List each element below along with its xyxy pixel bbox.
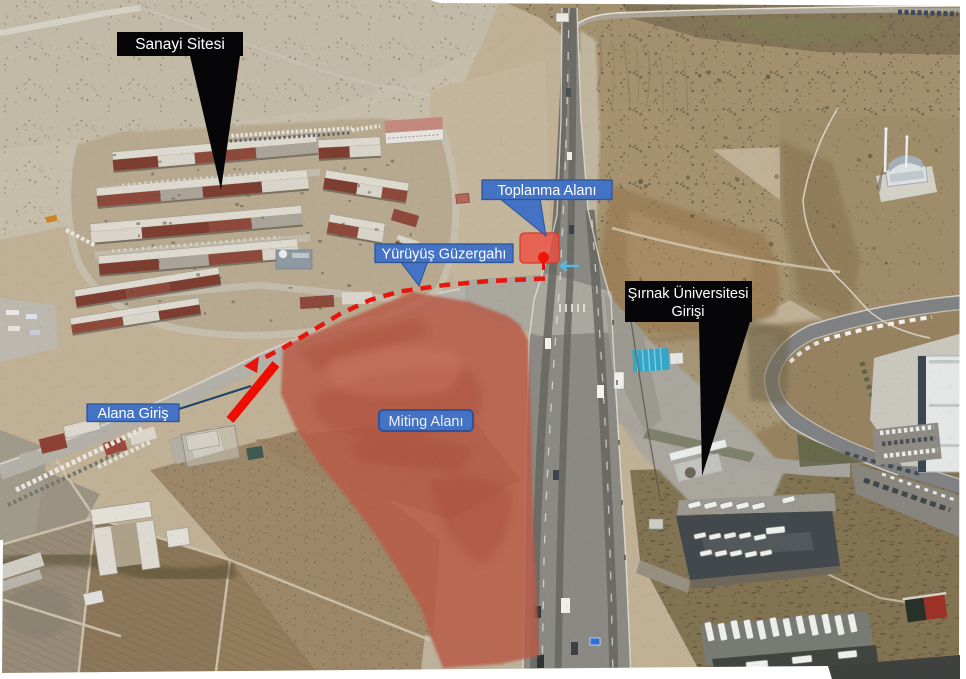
svg-text:Yürüyüş Güzergahı: Yürüyüş Güzergahı	[382, 247, 507, 263]
svg-text:Alana Giriş: Alana Giriş	[98, 406, 169, 422]
svg-text:Şırnak Üniversitesi: Şırnak Üniversitesi	[628, 284, 749, 302]
svg-text:Toplanma Alanı: Toplanma Alanı	[497, 183, 596, 199]
svg-text:Girişi: Girişi	[671, 304, 704, 320]
svg-text:Sanayi Sitesi: Sanayi Sitesi	[135, 36, 225, 53]
svg-text:Miting Alanı: Miting Alanı	[389, 414, 464, 430]
